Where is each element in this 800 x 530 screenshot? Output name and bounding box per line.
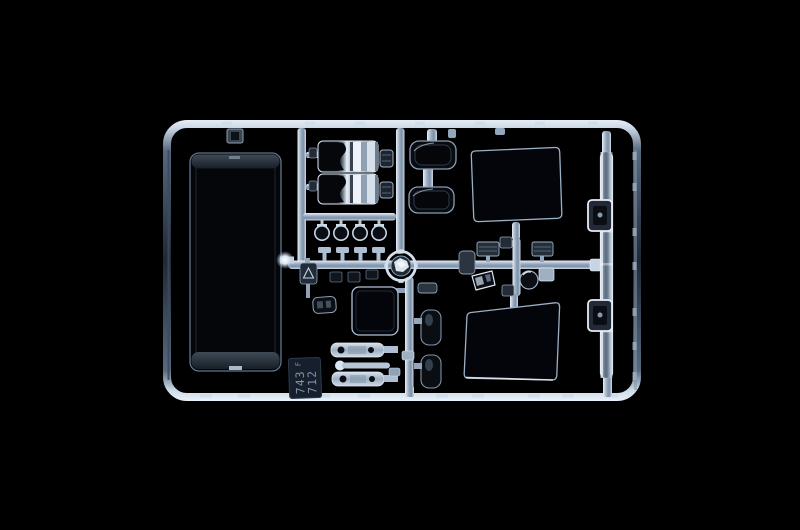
- round-lens: [334, 220, 348, 240]
- windshield-gate-flash: [276, 251, 294, 269]
- sprue-id-tag: F 743 712: [288, 357, 321, 398]
- bottom-rail-gate: [405, 386, 414, 397]
- light-bar-bottom: [332, 372, 398, 386]
- round-lens: [372, 220, 386, 240]
- lens-gate: [414, 318, 422, 324]
- light-block: [539, 268, 554, 281]
- small-clip-a: [309, 148, 317, 158]
- seat-cushion-bottom: [409, 187, 454, 213]
- runner-vertical-lower: [405, 277, 414, 397]
- rounded-lens-block: [459, 251, 475, 274]
- gate-to-top-window: [512, 222, 520, 240]
- sun-visor-strip: [600, 152, 613, 378]
- headlamp-cluster-top: [318, 141, 378, 172]
- top-rail-clip-tab: [227, 129, 243, 143]
- round-lens-row: [315, 220, 386, 240]
- dark-lens-pair: [414, 283, 441, 388]
- seat-cushion-top: [410, 141, 456, 169]
- runner-vertical-mid: [396, 128, 405, 254]
- windshield-pane: [190, 153, 294, 371]
- tag-number-right: 712: [305, 370, 320, 394]
- small-bracket-part: [418, 283, 437, 293]
- headlamp-cluster-bottom: [318, 174, 378, 204]
- small-dark-lens: [312, 296, 336, 314]
- runner-vertical-left: [298, 128, 307, 264]
- stub-small-lens: [306, 284, 310, 298]
- light-bar-top: [331, 343, 398, 357]
- rect-lens-left: [477, 242, 499, 262]
- indicator-lens-left: [380, 150, 393, 167]
- clip-row: [318, 247, 385, 261]
- dark-clip-row: [330, 270, 378, 282]
- small-clip-d: [389, 368, 400, 376]
- wiper-rod: [335, 361, 390, 371]
- windshield-bottom-tick: [229, 366, 242, 370]
- windshield-top-tick: [229, 156, 240, 159]
- runner-sub-horizontal: [303, 213, 396, 221]
- small-square-lens-top: [500, 237, 512, 248]
- side-window-top: [471, 147, 562, 221]
- lens-gate: [414, 363, 422, 369]
- small-clear-window: [352, 287, 398, 335]
- mirror-glass-small: [472, 271, 495, 290]
- small-clip-c: [402, 351, 414, 360]
- round-lens: [353, 220, 367, 240]
- round-lens: [315, 220, 329, 240]
- small-square-lens-bottom: [502, 285, 514, 296]
- top-rail-stub-2: [495, 128, 505, 135]
- top-rail-stub-1: [448, 129, 456, 138]
- rect-lens-right: [532, 242, 553, 262]
- tag-letter: F: [294, 361, 302, 366]
- round-lamp-small: [520, 271, 538, 289]
- mirror-housing-bottom: [588, 300, 612, 331]
- photo-stage: F 743 712: [0, 0, 800, 530]
- mirror-housing-top: [588, 200, 612, 231]
- strip-gate-bottom: [603, 375, 612, 397]
- side-window-bottom: [464, 303, 559, 380]
- small-clip-b: [309, 181, 317, 191]
- indicator-lens-right: [380, 182, 393, 198]
- sprue-photo: F 743 712: [0, 0, 800, 530]
- runner-main-horizontal: [288, 261, 600, 270]
- right-rail-ticks: [633, 152, 637, 380]
- strip-gate-top: [602, 131, 611, 155]
- frame-left-rail: [168, 150, 170, 380]
- bar-gate: [384, 346, 398, 353]
